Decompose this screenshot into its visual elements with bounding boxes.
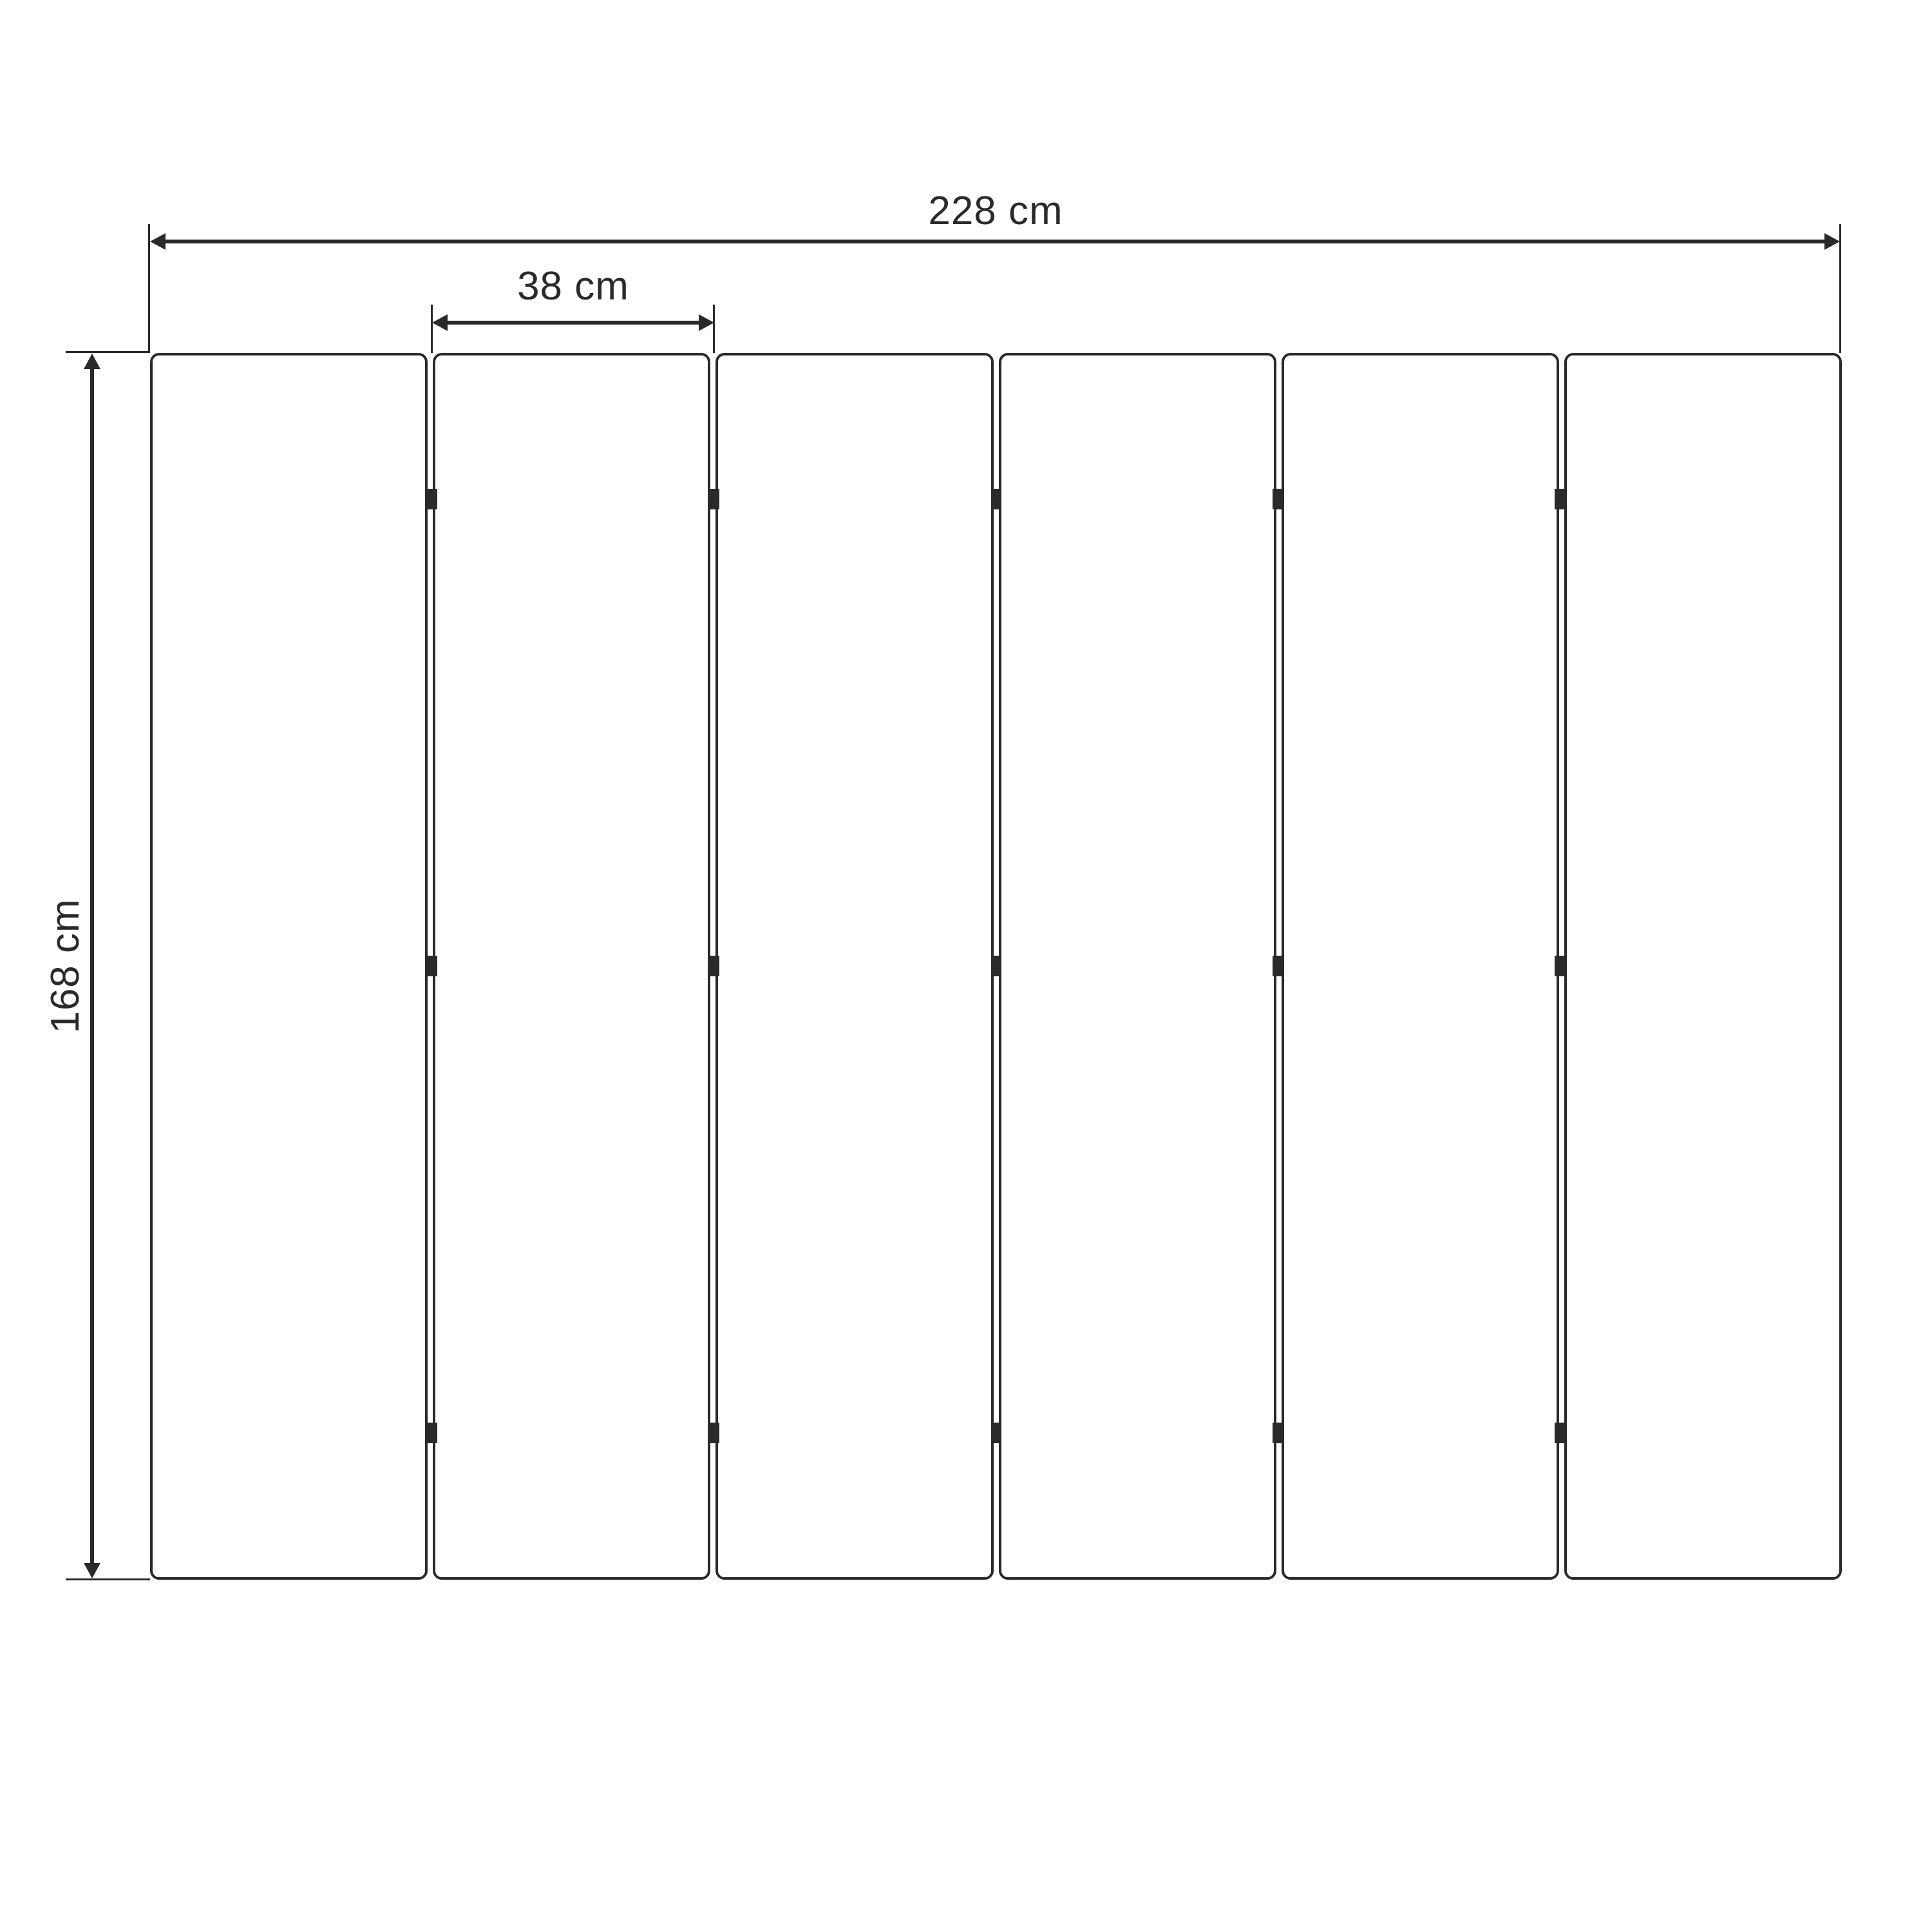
panel-width-label: 38 cm — [517, 267, 629, 307]
dimension-line-height — [90, 361, 94, 1571]
hinge-joint4-row1 — [1273, 489, 1283, 509]
dimension-line-panel-width — [440, 321, 706, 325]
arrowhead-up-icon — [84, 354, 100, 369]
total-width-label: 228 cm — [928, 191, 1063, 231]
arrowhead-left-icon — [432, 314, 448, 331]
panel-4 — [999, 353, 1276, 1580]
hinge-joint2-row1 — [709, 489, 719, 509]
hinge-joint1-row2 — [427, 956, 437, 976]
hinge-joint1-row1 — [427, 489, 437, 509]
panel-6 — [1564, 353, 1842, 1580]
diagram-canvas: 228 cm 38 cm 168 cm — [0, 0, 1932, 1932]
arrowhead-left-icon — [150, 233, 166, 250]
hinge-joint4-row2 — [1273, 956, 1283, 976]
panel-5 — [1282, 353, 1559, 1580]
height-label: 168 cm — [46, 898, 86, 1033]
dimension-line-total-width — [158, 240, 1832, 243]
hinge-joint2-row2 — [709, 956, 719, 976]
extension-line-height-bottom — [66, 1578, 150, 1580]
hinge-joint4-row3 — [1273, 1423, 1283, 1443]
panel-3 — [715, 353, 993, 1580]
arrowhead-down-icon — [84, 1563, 100, 1578]
arrowhead-right-icon — [699, 314, 714, 331]
panel-2 — [433, 353, 710, 1580]
hinge-joint5-row3 — [1555, 1423, 1565, 1443]
hinge-joint5-row2 — [1555, 956, 1565, 976]
hinge-joint3-row3 — [991, 1423, 1001, 1443]
hinge-joint1-row3 — [427, 1423, 437, 1443]
panel-1 — [150, 353, 428, 1580]
hinge-joint3-row2 — [991, 956, 1001, 976]
hinge-joint5-row1 — [1555, 489, 1565, 509]
hinge-joint3-row1 — [991, 489, 1001, 509]
hinge-joint2-row3 — [709, 1423, 719, 1443]
extension-line-height-top — [66, 351, 150, 353]
arrowhead-right-icon — [1824, 233, 1840, 250]
